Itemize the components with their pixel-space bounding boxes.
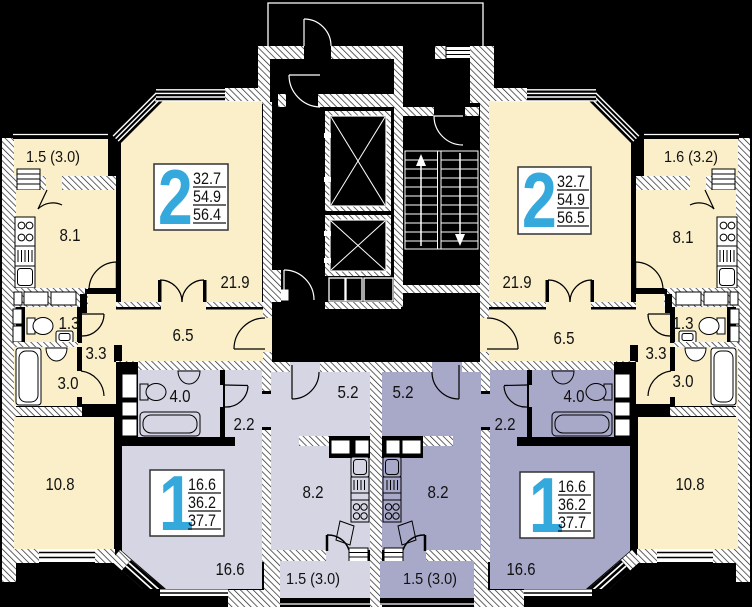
svg-text:3.3: 3.3: [86, 343, 107, 363]
svg-text:8.1: 8.1: [673, 227, 694, 247]
svg-text:21.9: 21.9: [503, 272, 532, 292]
svg-text:10.8: 10.8: [46, 474, 75, 494]
svg-text:16.6: 16.6: [558, 477, 586, 496]
svg-text:2.2: 2.2: [234, 414, 255, 434]
svg-text:4.0: 4.0: [170, 386, 191, 406]
svg-text:8.2: 8.2: [428, 482, 449, 502]
svg-text:2.2: 2.2: [495, 414, 516, 434]
svg-text:1.3: 1.3: [673, 313, 694, 333]
svg-text:21.9: 21.9: [221, 272, 250, 292]
svg-text:3.0: 3.0: [673, 371, 694, 391]
svg-text:5.2: 5.2: [393, 382, 414, 402]
svg-text:54.9: 54.9: [193, 187, 221, 206]
svg-text:36.2: 36.2: [188, 493, 216, 512]
svg-text:6.5: 6.5: [173, 325, 194, 345]
svg-text:8.1: 8.1: [60, 225, 81, 245]
svg-text:8.2: 8.2: [303, 482, 324, 502]
svg-text:1.5 (3.0): 1.5 (3.0): [286, 571, 340, 588]
svg-text:1.5 (3.0): 1.5 (3.0): [403, 571, 457, 588]
svg-text:4.0: 4.0: [564, 386, 585, 406]
svg-text:16.6: 16.6: [507, 559, 536, 579]
svg-text:10.8: 10.8: [676, 474, 705, 494]
svg-text:6.5: 6.5: [554, 328, 575, 348]
svg-text:36.2: 36.2: [558, 495, 586, 514]
svg-text:37.7: 37.7: [558, 513, 586, 532]
svg-text:32.7: 32.7: [557, 172, 585, 191]
svg-text:16.6: 16.6: [216, 559, 245, 579]
svg-text:2: 2: [522, 156, 557, 243]
svg-text:5.2: 5.2: [338, 382, 359, 402]
svg-text:1.3: 1.3: [59, 313, 80, 333]
svg-text:32.7: 32.7: [193, 169, 221, 188]
svg-text:3.0: 3.0: [58, 373, 79, 393]
svg-text:37.7: 37.7: [188, 511, 216, 530]
svg-text:2: 2: [158, 153, 193, 240]
svg-text:56.4: 56.4: [193, 205, 221, 224]
svg-text:16.6: 16.6: [188, 475, 216, 494]
svg-text:56.5: 56.5: [557, 208, 585, 227]
svg-text:3.3: 3.3: [646, 343, 667, 363]
svg-text:54.9: 54.9: [557, 190, 585, 209]
svg-text:1.5 (3.0): 1.5 (3.0): [26, 149, 80, 166]
svg-text:1.6 (3.2): 1.6 (3.2): [664, 149, 718, 166]
